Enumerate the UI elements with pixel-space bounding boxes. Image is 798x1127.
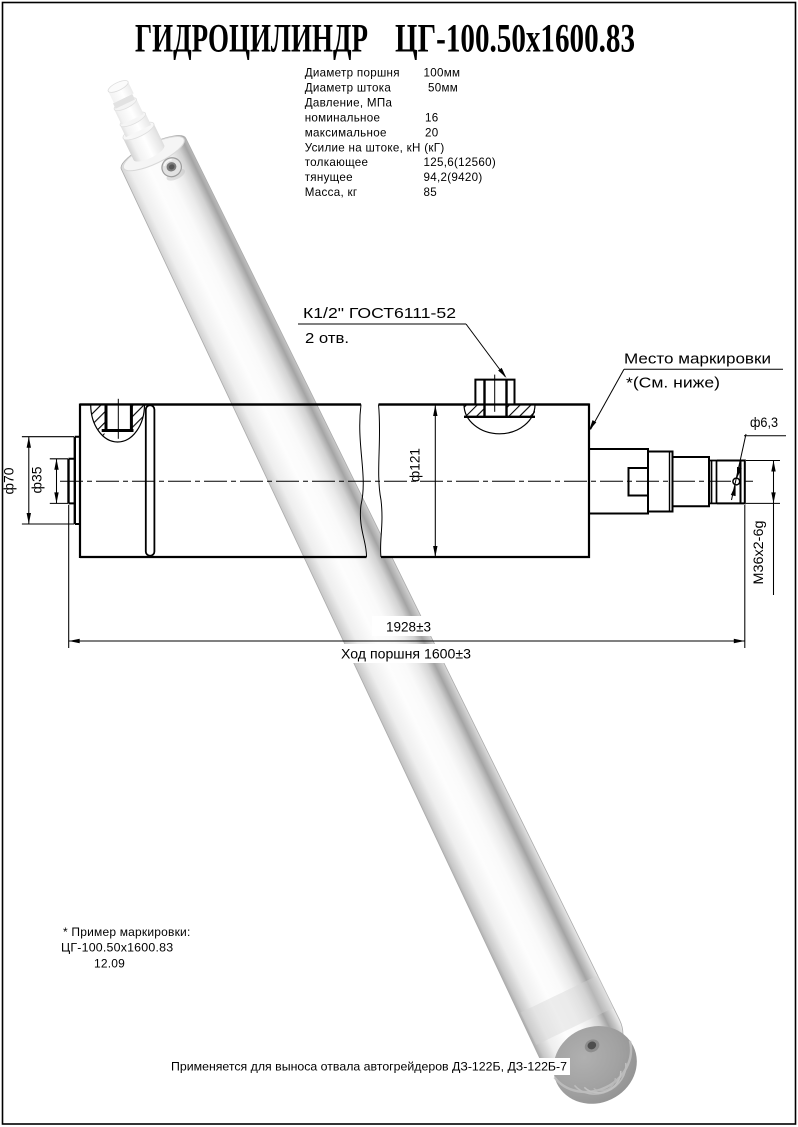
svg-text:максимальное: максимальное: [305, 126, 387, 139]
svg-text:* Пример маркировки:: * Пример маркировки:: [63, 925, 191, 939]
svg-text:Место маркировки: Место маркировки: [624, 351, 771, 368]
svg-text:Ход поршня 1600±3: Ход поршня 1600±3: [341, 647, 471, 662]
svg-text:*(См. ниже): *(См. ниже): [626, 375, 720, 392]
svg-text:Усилие на штоке, кН (кГ): Усилие на штоке, кН (кГ): [305, 141, 445, 154]
svg-text:ЦГ-100.50х1600.83: ЦГ-100.50х1600.83: [395, 16, 635, 61]
svg-text:ф121: ф121: [408, 448, 423, 482]
svg-text:12.09: 12.09: [94, 957, 125, 971]
svg-text:номинальное: номинальное: [305, 111, 381, 124]
svg-text:1928±3: 1928±3: [386, 620, 431, 635]
svg-text:20: 20: [425, 126, 439, 139]
svg-text:толкающее: толкающее: [305, 156, 369, 169]
svg-text:Диаметр штока: Диаметр штока: [305, 82, 392, 95]
svg-text:2 отв.: 2 отв.: [305, 330, 349, 347]
svg-text:16: 16: [425, 111, 439, 124]
svg-text:50мм: 50мм: [428, 82, 458, 95]
svg-text:Диаметр поршня: Диаметр поршня: [305, 67, 400, 80]
svg-text:Масса, кг: Масса, кг: [305, 186, 358, 199]
svg-text:100мм: 100мм: [424, 67, 461, 80]
svg-text:ЦГ-100.50х1600.83: ЦГ-100.50х1600.83: [61, 941, 173, 955]
svg-text:ф70: ф70: [2, 468, 17, 495]
svg-text:ГИДРОЦИЛИНДР: ГИДРОЦИЛИНДР: [135, 16, 368, 61]
svg-text:Давление, МПа: Давление, МПа: [305, 96, 393, 109]
svg-text:К1/2" ГОСТ6111-52: К1/2" ГОСТ6111-52: [303, 305, 456, 322]
svg-text:ф6,3: ф6,3: [750, 414, 778, 430]
svg-text:85: 85: [424, 186, 438, 199]
svg-text:М36х2-6g: М36х2-6g: [751, 521, 766, 585]
svg-text:ф35: ф35: [29, 467, 44, 494]
svg-text:94,2(9420): 94,2(9420): [424, 171, 483, 184]
svg-text:125,6(12560): 125,6(12560): [424, 156, 497, 169]
svg-text:тянущее: тянущее: [305, 171, 353, 184]
svg-text:Применяется для выноса отвала: Применяется для выноса отвала автогрейде…: [171, 1060, 567, 1074]
